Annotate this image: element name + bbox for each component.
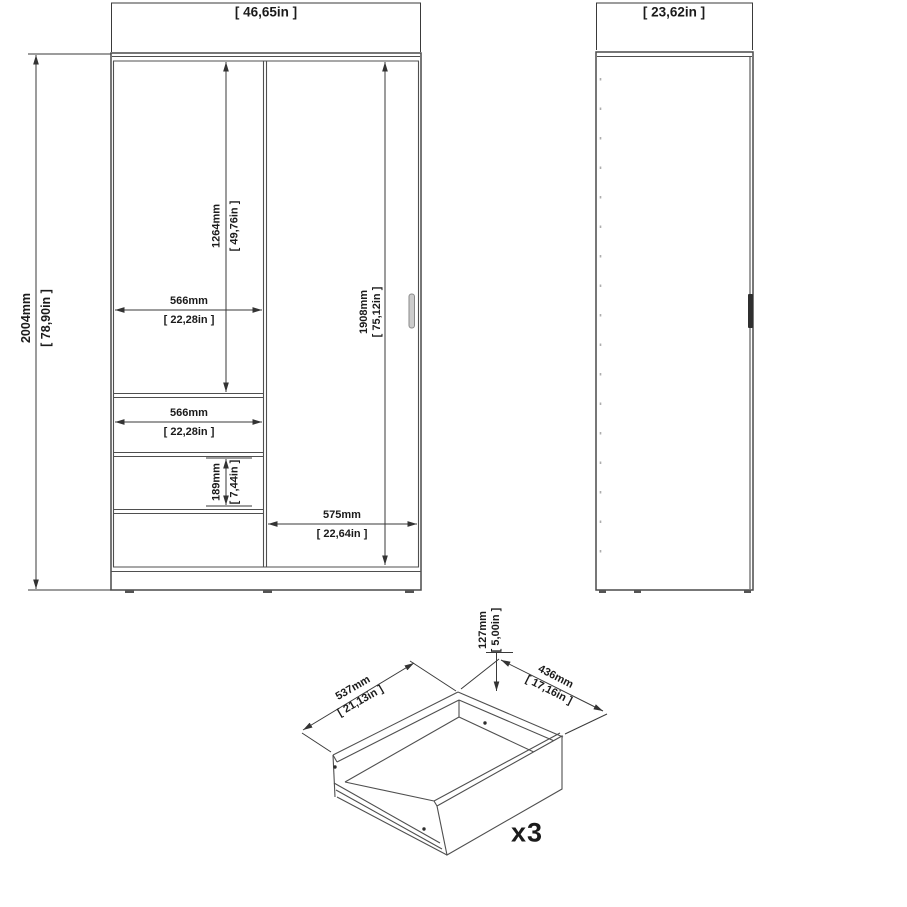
front-width-value: [ 46,65in ] <box>235 5 297 20</box>
front-door-handle <box>409 294 415 328</box>
sliding-door-height-dimension-label: 1908mm [ 75,12in ] <box>359 287 383 338</box>
front-foot <box>263 590 272 593</box>
drawing-linework <box>0 0 907 907</box>
left-compartment-height-dimension-label: 1264mm [ 49,76in ] <box>212 201 241 252</box>
sliding-door-width-mm: 575mm <box>323 510 361 521</box>
front-height-mm: 2004mm <box>20 293 33 343</box>
drawer-fitting-dot <box>422 827 425 830</box>
side-depth-dimension-label: [ 23,62in ] <box>643 5 705 20</box>
sliding-door-height-in: [ 75,12in ] <box>372 287 383 338</box>
wardrobe-technical-drawing: [ 46,65in ] [ 23,62in ] 2004mm [ 78,90in… <box>0 0 907 907</box>
side-foot <box>634 590 641 593</box>
drawer-front-width-in: [ 22,28in ] <box>164 427 215 438</box>
drawer-front-height-mm: 189mm <box>212 463 223 501</box>
front-foot <box>405 590 414 593</box>
front-height-dimension-label: 2004mm [ 78,90in ] <box>20 289 52 347</box>
front-height-in: [ 78,90in ] <box>40 289 53 347</box>
left-compartment-width-mm: 566mm <box>170 296 208 307</box>
side-view-linework <box>596 52 753 593</box>
side-foot <box>599 590 606 593</box>
side-door-handle <box>748 294 753 328</box>
drawer-front-height-in: [ 7,44in ] <box>230 460 241 505</box>
front-width-dimension-label: [ 46,65in ] <box>235 5 297 20</box>
side-foot <box>744 590 751 593</box>
side-depth-value: [ 23,62in ] <box>643 5 705 20</box>
drawer-fitting-dot <box>483 721 486 724</box>
left-compartment-height-in: [ 49,76in ] <box>230 201 241 252</box>
drawer-quantity-label: x3 <box>511 818 543 849</box>
sliding-door-width-in: [ 22,64in ] <box>317 529 368 540</box>
drawer-height-mm: 127mm <box>478 611 489 649</box>
drawer-quantity-value: x3 <box>511 818 543 848</box>
drawer-height-in: [ 5,00in ] <box>491 608 502 653</box>
drawer-front-height-dimension-label: 189mm [ 7,44in ] <box>212 460 241 505</box>
front-foot <box>125 590 134 593</box>
drawer-fitting-dot <box>333 765 336 768</box>
sliding-door-height-mm: 1908mm <box>359 290 370 334</box>
drawer-front-width-dimension-label: 566mm [ 22,28in ] <box>164 408 215 438</box>
sliding-door-width-dimension-label: 575mm [ 22,64in ] <box>317 510 368 540</box>
left-compartment-width-dimension-label: 566mm [ 22,28in ] <box>164 296 215 326</box>
drawer-front-panel <box>437 736 562 855</box>
left-compartment-height-mm: 1264mm <box>212 204 223 248</box>
side-cabinet-outline <box>596 52 753 590</box>
drawer-front-width-mm: 566mm <box>170 408 208 419</box>
left-compartment-width-in: [ 22,28in ] <box>164 315 215 326</box>
drawer-height-dimension-label: 127mm [ 5,00in ] <box>478 608 502 653</box>
